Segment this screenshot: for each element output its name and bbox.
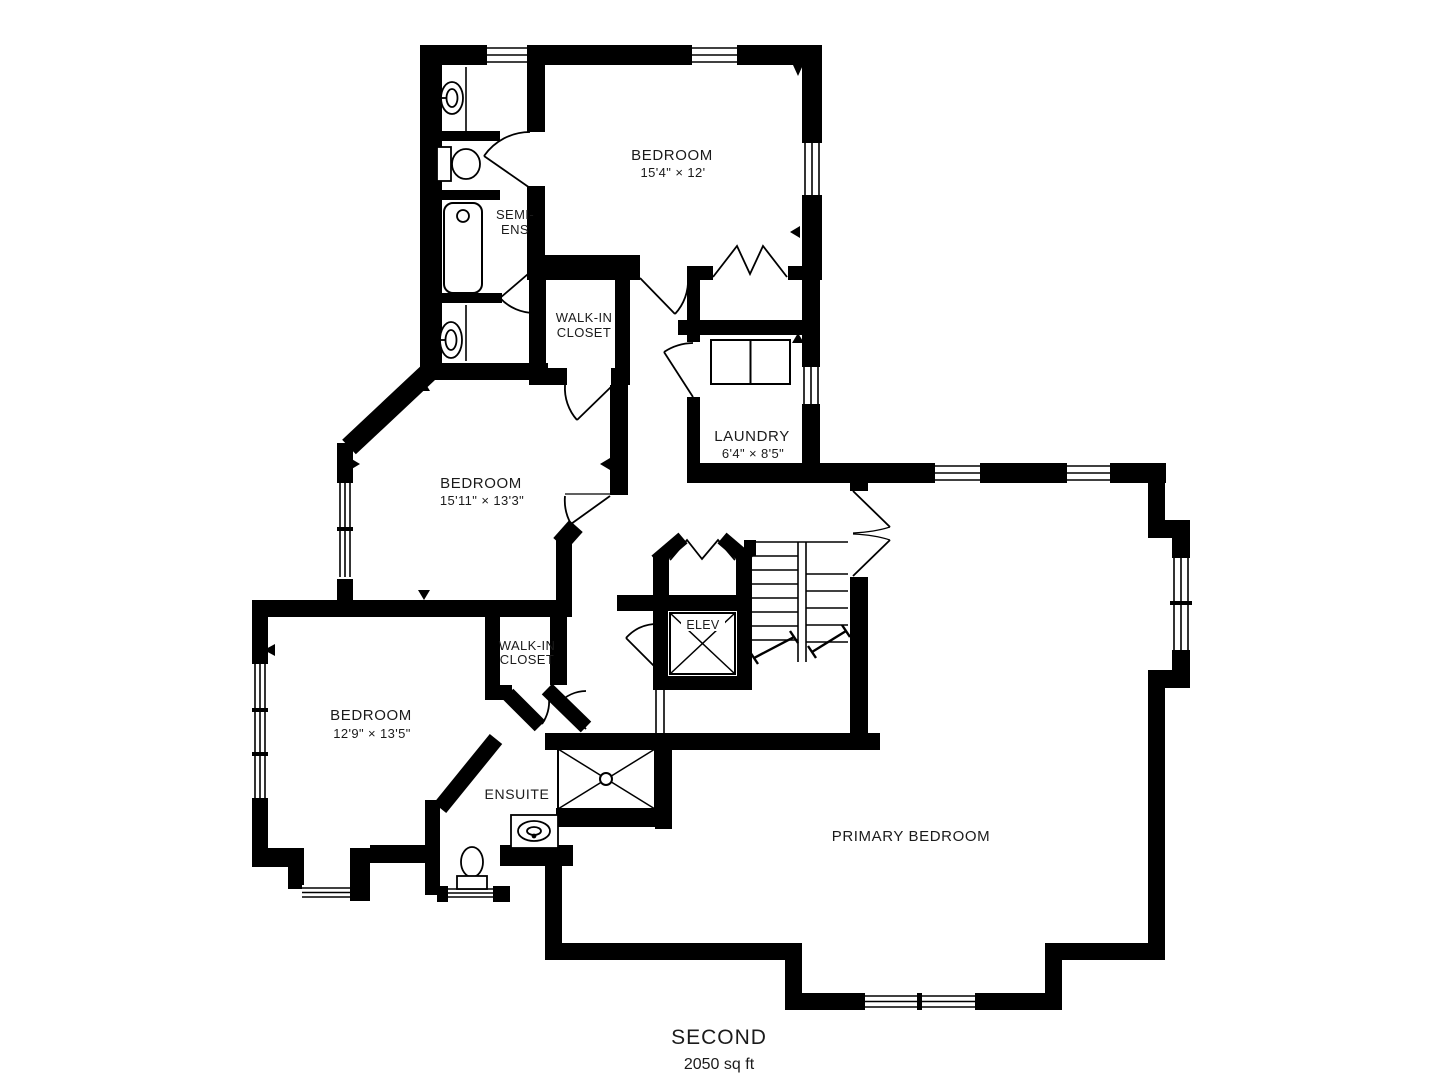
window-bedroom-middle [337,483,353,579]
window-top-2 [692,45,737,65]
room-label-primary-bedroom: PRIMARY BEDROOM [832,828,990,845]
room-label-semi-ens-1: SEMI- [496,207,534,222]
room-dims-bedroom-middle: 15'11" × 13'3" [440,493,524,508]
room-dims-laundry: 6'4" × 8'5" [722,446,784,461]
tick-bedroom-middle-right [600,458,610,470]
window-primary-right [1170,558,1192,650]
door-bedroom-top-closet [713,246,787,277]
room-label-ensuite: ENSUITE [485,786,550,802]
door-closet-top [565,385,613,420]
room-label-wic-top-1: WALK-IN [556,310,613,325]
room-label-wic-lower-2: CLOSET [500,652,554,667]
window-primary-top-2 [1067,463,1110,483]
door-bedroom-top-entry [640,278,688,314]
room-dims-bedroom-top: 15'4" × 12' [641,165,706,180]
tick-bedroom-top [790,226,800,238]
shower [558,749,655,809]
floor-area: 2050 sq ft [684,1056,755,1073]
window-bedroom-top-right [800,143,824,195]
room-label-laundry: LAUNDRY [714,428,790,445]
tick-bedroom-middle-left [350,458,360,470]
room-label-bedroom-lower: BEDROOM [330,707,412,724]
window-primary-top-1 [935,463,980,483]
door-bedroom-middle [565,494,610,524]
floorplan-svg: BEDROOM 15'4" × 12' SEMI- ENS WALK-IN CL… [0,0,1439,1080]
room-label-bedroom-top: BEDROOM [631,147,713,164]
windows [252,45,1192,1010]
door-french-primary [853,491,890,576]
walls [252,45,1190,1010]
window-primary-bottom [865,993,975,1010]
window-top-1 [487,45,527,65]
bathtub [444,203,482,293]
sink-semi-ens-1 [441,82,463,114]
tick-top-right [793,65,803,76]
stairs [744,540,850,664]
room-dims-bedroom-lower: 12'9" × 13'5" [333,726,411,741]
window-bay [302,885,350,900]
room-label-bedroom-middle: BEDROOM [440,475,522,492]
door-laundry [664,343,693,397]
toilet-semi-ens [437,147,480,181]
room-label-elevator: ELEV [686,618,720,632]
window-bedroom-lower-left [252,664,268,798]
stair-break-marks [750,625,850,664]
room-label-semi-ens-2: ENS [501,222,529,237]
washer-dryer [711,340,790,384]
tick-bedroom-lower-top [418,590,430,600]
door-hall-elevator [626,624,654,666]
ensuite-toilet [457,847,487,889]
sink-semi-ens-2 [440,322,462,358]
room-label-wic-lower-1: WALK-IN [499,638,556,653]
ensuite-sink [511,815,558,848]
floor-title: SECOND [671,1026,767,1049]
window-laundry [800,367,822,404]
floorplan-page: BEDROOM 15'4" × 12' SEMI- ENS WALK-IN CL… [0,0,1439,1080]
room-label-wic-top-2: CLOSET [557,325,611,340]
